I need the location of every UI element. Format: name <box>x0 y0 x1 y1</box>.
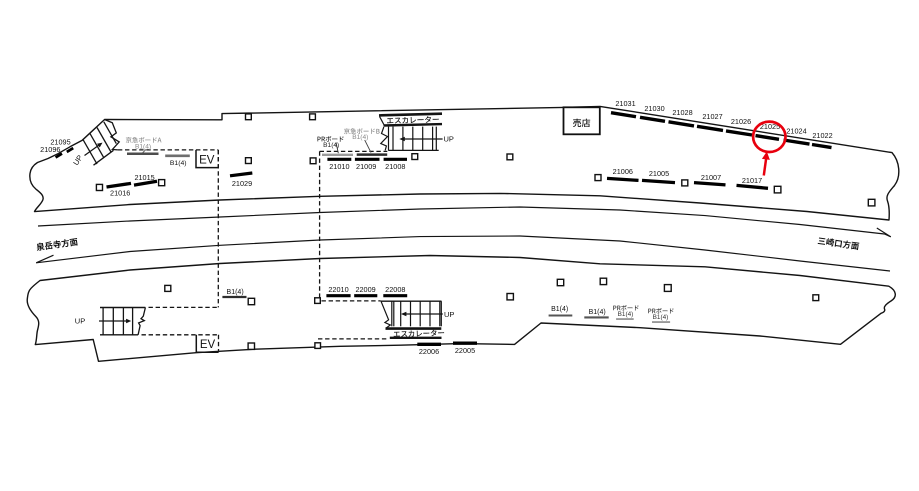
svg-text:21026: 21026 <box>731 117 751 126</box>
svg-text:21024: 21024 <box>786 127 806 136</box>
svg-text:22008: 22008 <box>385 285 405 294</box>
svg-text:B1(4): B1(4) <box>170 160 187 167</box>
svg-text:UP: UP <box>444 135 454 144</box>
svg-text:B1(4): B1(4) <box>618 311 634 318</box>
svg-text:21030: 21030 <box>644 104 664 113</box>
svg-text:UP: UP <box>75 317 85 326</box>
svg-text:B1(4): B1(4) <box>352 134 368 141</box>
svg-text:21031: 21031 <box>615 99 635 108</box>
svg-text:21009: 21009 <box>356 162 376 171</box>
svg-text:B1(4): B1(4) <box>227 289 244 296</box>
svg-text:22010: 22010 <box>328 285 348 294</box>
svg-text:21005: 21005 <box>649 169 669 178</box>
svg-text:EV: EV <box>200 339 216 351</box>
svg-text:22006: 22006 <box>419 347 439 356</box>
svg-text:B1(4): B1(4) <box>589 309 606 316</box>
svg-text:EV: EV <box>199 154 215 166</box>
svg-text:UP: UP <box>444 310 454 319</box>
svg-text:22005: 22005 <box>455 346 475 355</box>
svg-text:21008: 21008 <box>385 162 405 171</box>
svg-text:21010: 21010 <box>329 162 349 171</box>
svg-text:22009: 22009 <box>355 285 375 294</box>
svg-text:21096: 21096 <box>40 145 60 154</box>
svg-text:B1(4): B1(4) <box>653 314 669 321</box>
svg-text:21017: 21017 <box>742 176 762 185</box>
svg-text:21022: 21022 <box>812 131 832 140</box>
svg-text:21015: 21015 <box>134 173 154 182</box>
svg-text:B1(4): B1(4) <box>551 306 568 313</box>
svg-text:21007: 21007 <box>701 173 721 182</box>
svg-text:21028: 21028 <box>672 108 692 117</box>
svg-text:21016: 21016 <box>110 189 130 198</box>
svg-text:B1(4): B1(4) <box>135 144 151 151</box>
svg-text:21006: 21006 <box>613 167 633 176</box>
svg-text:21027: 21027 <box>702 112 722 121</box>
svg-text:21029: 21029 <box>232 179 252 188</box>
